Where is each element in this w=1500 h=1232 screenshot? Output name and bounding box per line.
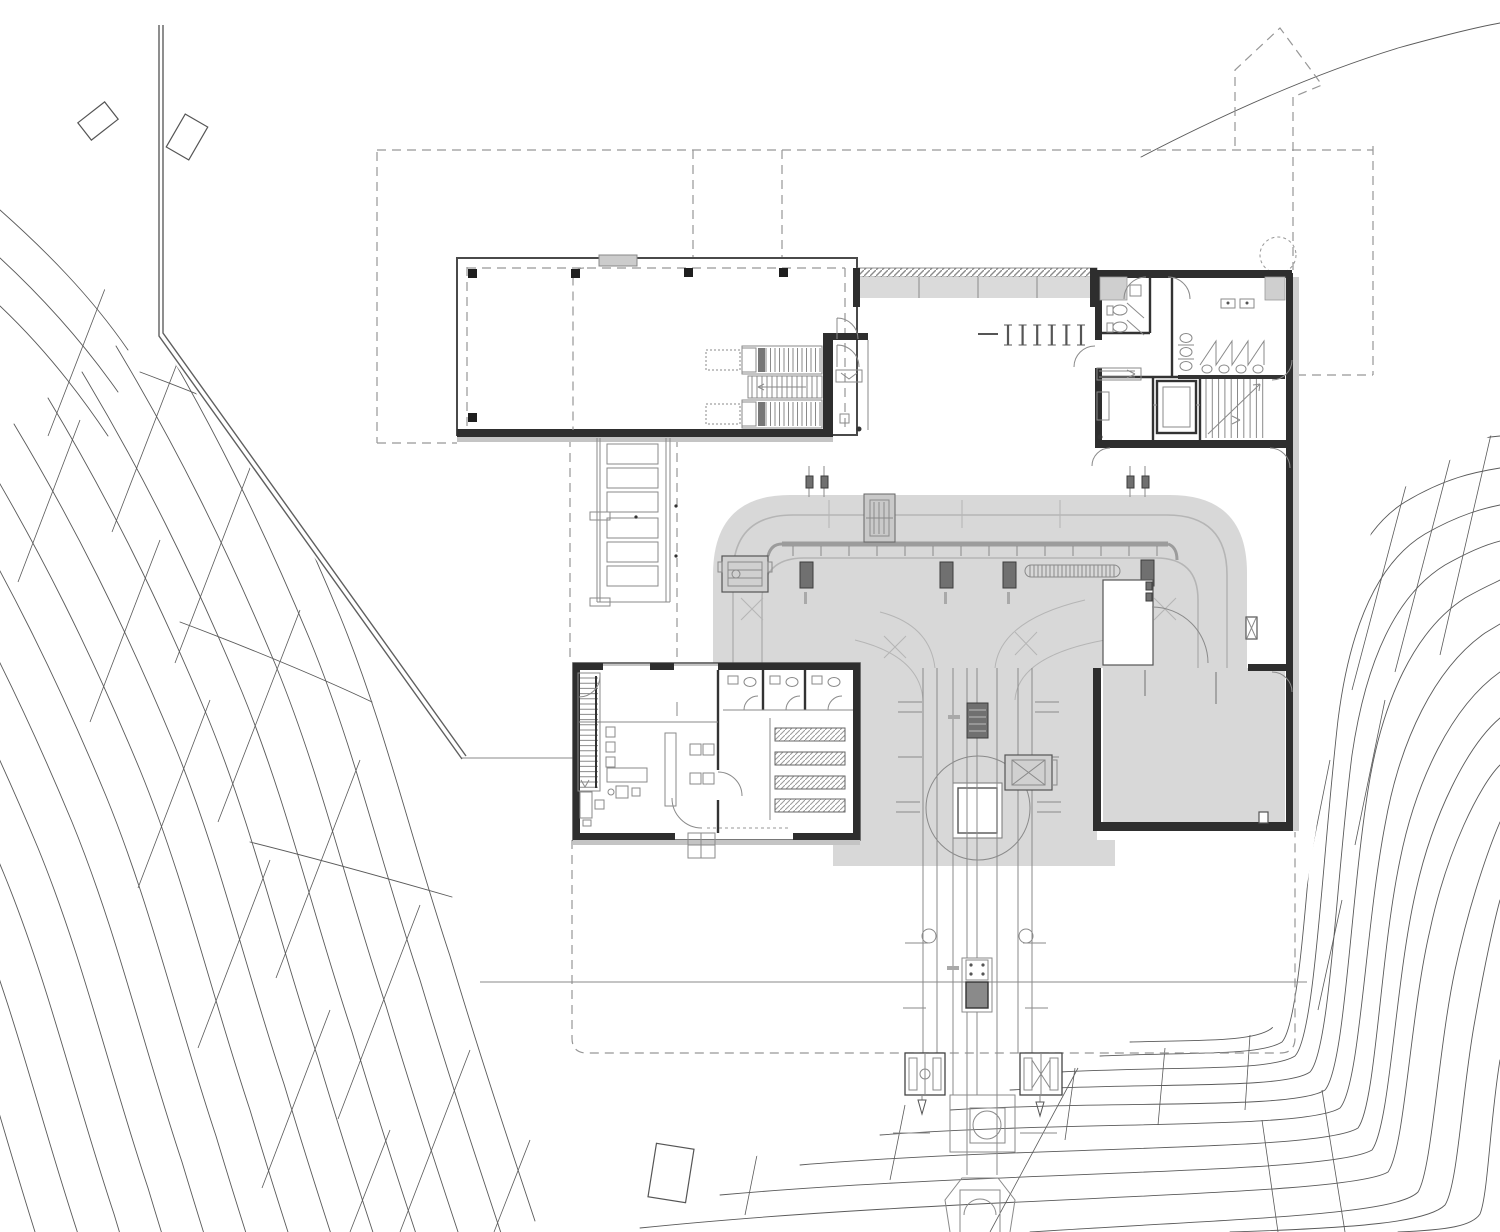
east-wall-strip [1293,277,1299,831]
elevator [1153,381,1200,433]
floor-plan-svg [0,0,1500,1232]
entrance-hall [457,255,868,442]
entrance-mat [599,255,637,266]
cabin-2 [940,562,953,588]
east-wall [1286,273,1293,831]
return-bullwheel-machine [718,556,772,592]
operations-office [573,663,860,845]
wall-notch [1259,812,1268,823]
loop-door-marker [1246,617,1257,639]
tension-machine-right [1020,1053,1062,1095]
cabin-3 [1003,562,1016,588]
launcher-machine [864,494,895,542]
floor-plan-page: Black-and-white architectural plan of a … [0,0,1500,1232]
hut-3 [648,1143,694,1202]
cabin-1 [800,562,813,588]
equipment-room-floor [1103,668,1285,828]
tension-machine-left [905,1053,945,1095]
deflection-machine [1005,755,1057,790]
